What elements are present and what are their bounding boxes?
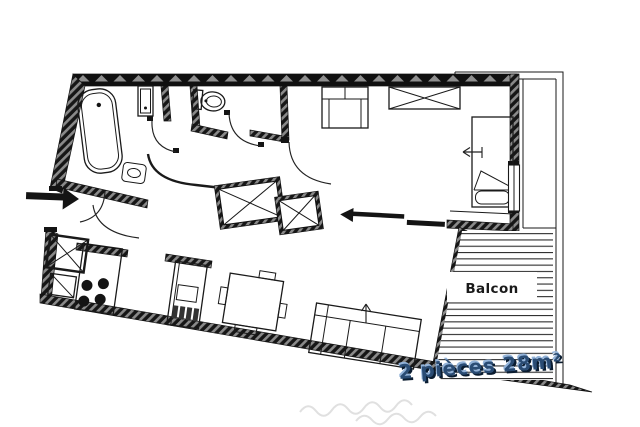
bedroom-window [509,165,520,211]
bed [472,117,513,207]
bidet [121,162,146,184]
living-room-door-arc [289,142,331,184]
wc-left-wall [190,86,200,128]
pillow [476,191,510,204]
stove-burner [81,279,93,291]
sliding-door-arrow [340,207,354,222]
wc-door-arc [229,113,261,146]
bathroom-sink [138,86,153,116]
left-wall-upper [50,74,85,193]
door-track [450,211,513,214]
floor-plan-page: Balcon [0,0,640,427]
hall-curved-wall [148,154,222,188]
chair [278,303,287,318]
wardrobe [389,87,460,109]
watermark-squiggle [300,400,436,424]
floor-plan-svg: Balcon [0,0,640,427]
living-room-wall [280,86,289,140]
hall-wall-stub [250,130,284,142]
sofa-arrow [362,304,371,323]
kitchen-wall-right [165,254,212,268]
balcony-front-wall [447,220,513,231]
bathroom-door-arc [152,121,176,152]
balcony-label: Balcon [465,281,518,297]
chair [218,287,228,305]
bathtub [76,87,124,175]
wc-bottom-wall [191,124,228,139]
blanket [474,171,511,190]
chair [259,271,276,280]
top-wall [73,74,517,86]
central-wardrobe-right [275,191,324,235]
armchair [322,87,368,128]
central-wardrobe-left [214,177,285,230]
stove-burner [97,277,109,289]
bath-wc-divider-wall [161,86,171,121]
sliding-door [340,207,446,226]
bedroom-right-wall-upper [510,74,519,167]
